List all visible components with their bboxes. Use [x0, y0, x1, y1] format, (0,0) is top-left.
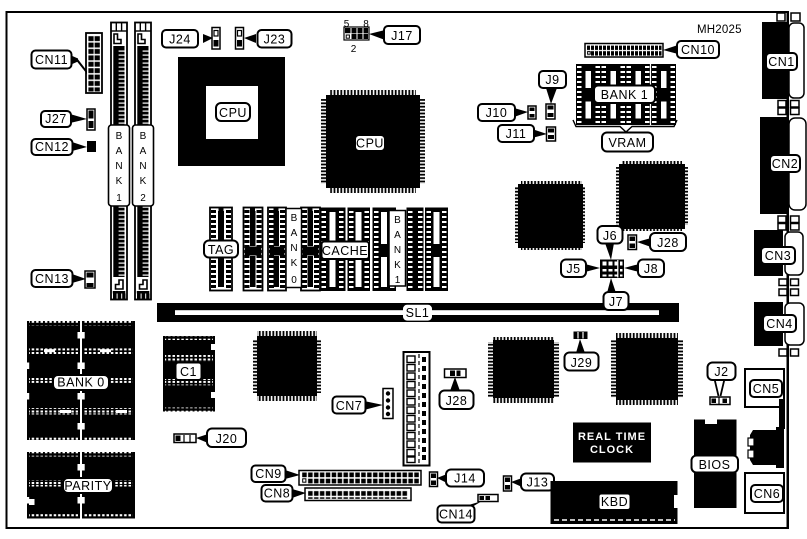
svg-text:BIOS: BIOS: [699, 458, 731, 472]
svg-text:2: 2: [351, 44, 357, 55]
svg-text:PARITY: PARITY: [64, 479, 111, 493]
svg-text:J14: J14: [454, 472, 476, 486]
svg-text:B: B: [291, 213, 298, 224]
svg-text:J5: J5: [566, 262, 580, 276]
svg-text:B: B: [394, 215, 401, 226]
svg-text:J10: J10: [486, 106, 508, 120]
svg-text:REAL TIME: REAL TIME: [578, 431, 646, 443]
svg-text:5: 5: [344, 19, 350, 30]
svg-text:CPU: CPU: [219, 106, 247, 120]
svg-text:J7: J7: [609, 295, 623, 309]
svg-text:CPU: CPU: [356, 137, 384, 151]
svg-text:TAG: TAG: [208, 243, 234, 257]
svg-text:BANK 1: BANK 1: [601, 88, 648, 102]
svg-text:BANK 0: BANK 0: [57, 376, 104, 390]
svg-text:CN2: CN2: [772, 157, 799, 171]
svg-text:CACHE: CACHE: [322, 244, 368, 258]
svg-text:J11: J11: [506, 127, 527, 141]
svg-text:1: 1: [395, 275, 401, 286]
svg-text:KBD: KBD: [601, 495, 628, 509]
svg-text:CN13: CN13: [35, 272, 69, 286]
svg-text:8: 8: [363, 19, 369, 30]
svg-text:CN10: CN10: [681, 43, 715, 57]
svg-text:CN11: CN11: [35, 53, 68, 67]
svg-text:SL1: SL1: [406, 306, 430, 320]
svg-text:K: K: [394, 260, 401, 271]
svg-text:1: 1: [116, 193, 122, 204]
svg-text:CN9: CN9: [255, 467, 282, 481]
svg-text:N: N: [139, 161, 146, 172]
svg-text:MH2025: MH2025: [697, 24, 742, 36]
svg-text:A: A: [140, 146, 147, 157]
svg-text:CN5: CN5: [753, 382, 780, 396]
svg-text:B: B: [140, 131, 147, 142]
svg-text:J24: J24: [169, 33, 191, 47]
svg-text:A: A: [291, 228, 298, 239]
svg-text:N: N: [394, 245, 401, 256]
svg-text:K: K: [116, 176, 123, 187]
svg-text:J28: J28: [446, 394, 468, 408]
svg-text:CN6: CN6: [754, 487, 781, 501]
svg-text:J17: J17: [391, 29, 413, 43]
svg-text:A: A: [116, 146, 123, 157]
svg-text:VRAM: VRAM: [608, 136, 646, 150]
svg-text:A: A: [394, 230, 401, 241]
svg-text:C1: C1: [180, 365, 197, 379]
svg-text:B: B: [116, 131, 123, 142]
svg-text:CN12: CN12: [35, 140, 69, 154]
svg-text:J27: J27: [45, 112, 67, 126]
svg-text:CN7: CN7: [336, 399, 363, 413]
svg-text:CLOCK: CLOCK: [590, 444, 634, 456]
svg-text:N: N: [115, 161, 122, 172]
svg-text:J29: J29: [571, 356, 593, 370]
svg-text:J2: J2: [714, 365, 728, 379]
svg-text:J6: J6: [603, 229, 617, 243]
svg-text:J13: J13: [527, 476, 549, 490]
svg-text:0: 0: [291, 275, 297, 286]
svg-text:2: 2: [140, 193, 146, 204]
svg-text:CN3: CN3: [765, 249, 792, 263]
svg-text:CN14: CN14: [439, 508, 473, 522]
svg-text:J9: J9: [545, 73, 559, 87]
svg-text:J28: J28: [657, 236, 679, 250]
svg-text:J23: J23: [264, 33, 286, 47]
svg-text:K: K: [140, 176, 147, 187]
svg-text:CN1: CN1: [768, 55, 795, 69]
svg-text:CN8: CN8: [264, 487, 291, 501]
svg-text:J20: J20: [216, 432, 238, 446]
svg-text:CN4: CN4: [766, 317, 793, 331]
svg-text:N: N: [290, 243, 297, 254]
svg-text:K: K: [291, 258, 298, 269]
svg-text:J8: J8: [644, 262, 658, 276]
